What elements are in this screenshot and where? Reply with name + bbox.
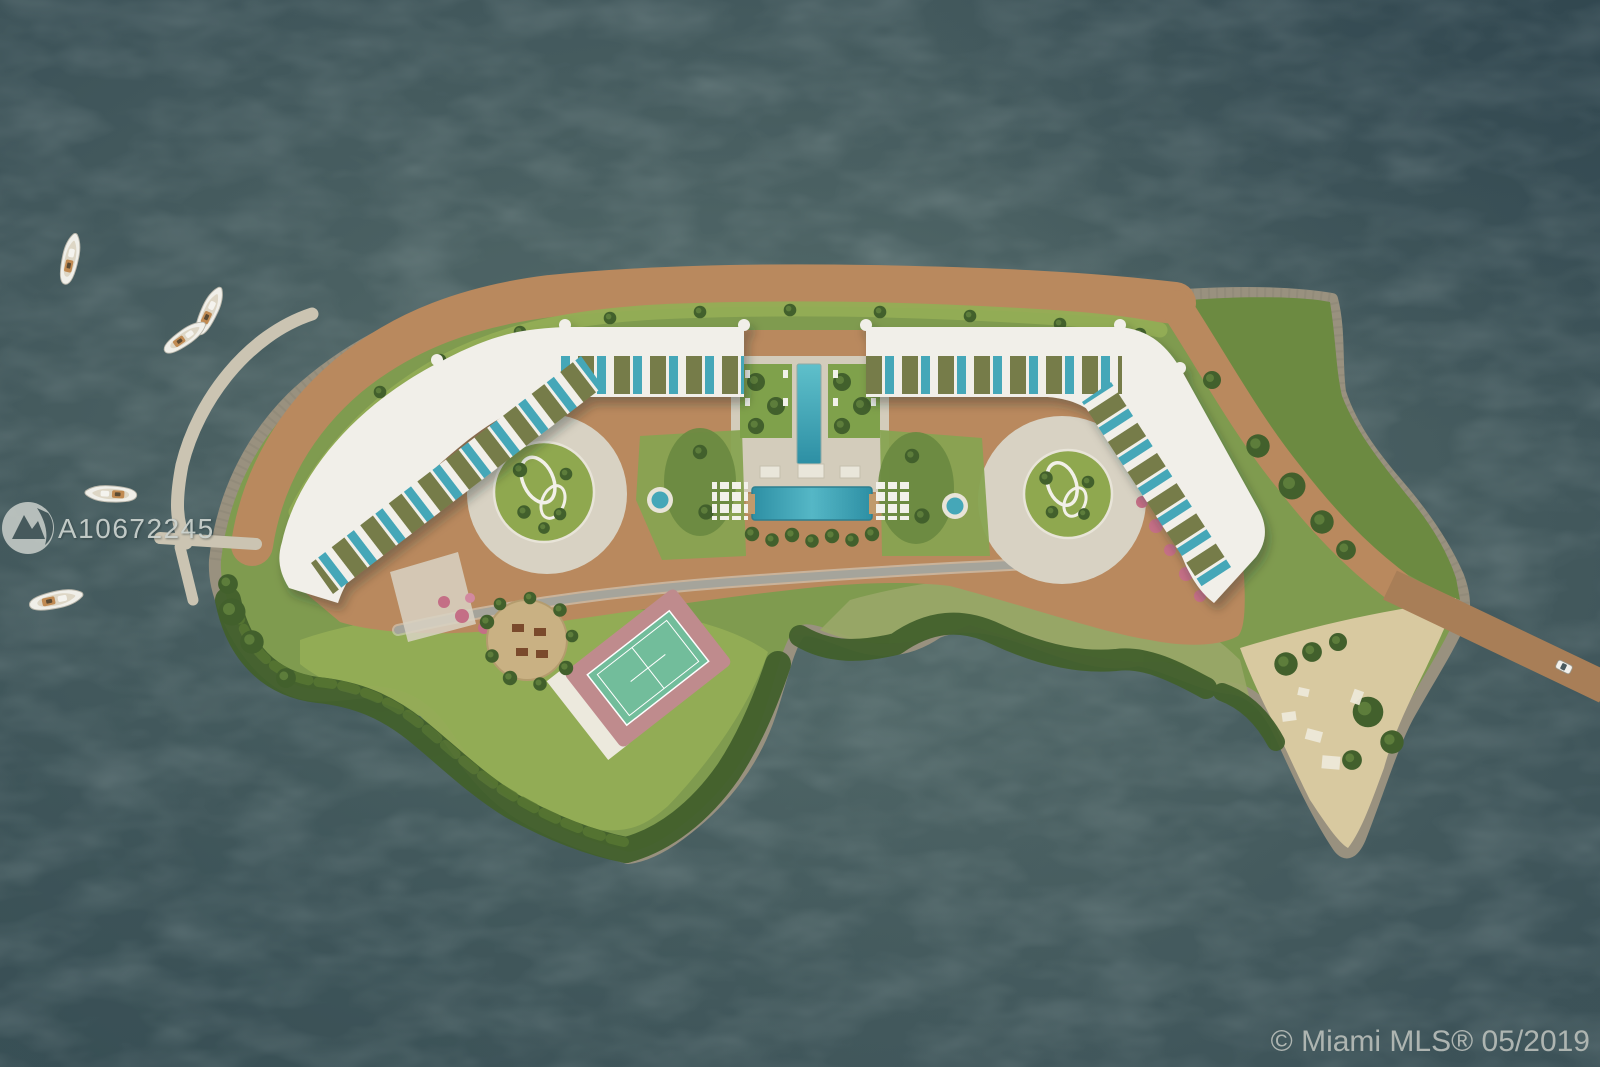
main-pool — [752, 487, 872, 520]
cabana-grid-left — [712, 482, 748, 520]
island-scene: A10672245 © Miami MLS® 05/2019 — [0, 0, 1600, 1067]
aerial-rendering: A10672245 © Miami MLS® 05/2019 — [0, 0, 1600, 1067]
spa-pool-right — [942, 493, 968, 519]
miami-mls-logo — [2, 502, 54, 554]
cabana-grid-right — [876, 482, 912, 520]
central-lap-pool — [797, 364, 821, 464]
listing-id-text: A10672245 — [58, 513, 215, 544]
plaza-pavilion — [760, 464, 860, 478]
copyright-text: © Miami MLS® 05/2019 — [1271, 1025, 1590, 1058]
spa-pool-left — [647, 487, 673, 513]
